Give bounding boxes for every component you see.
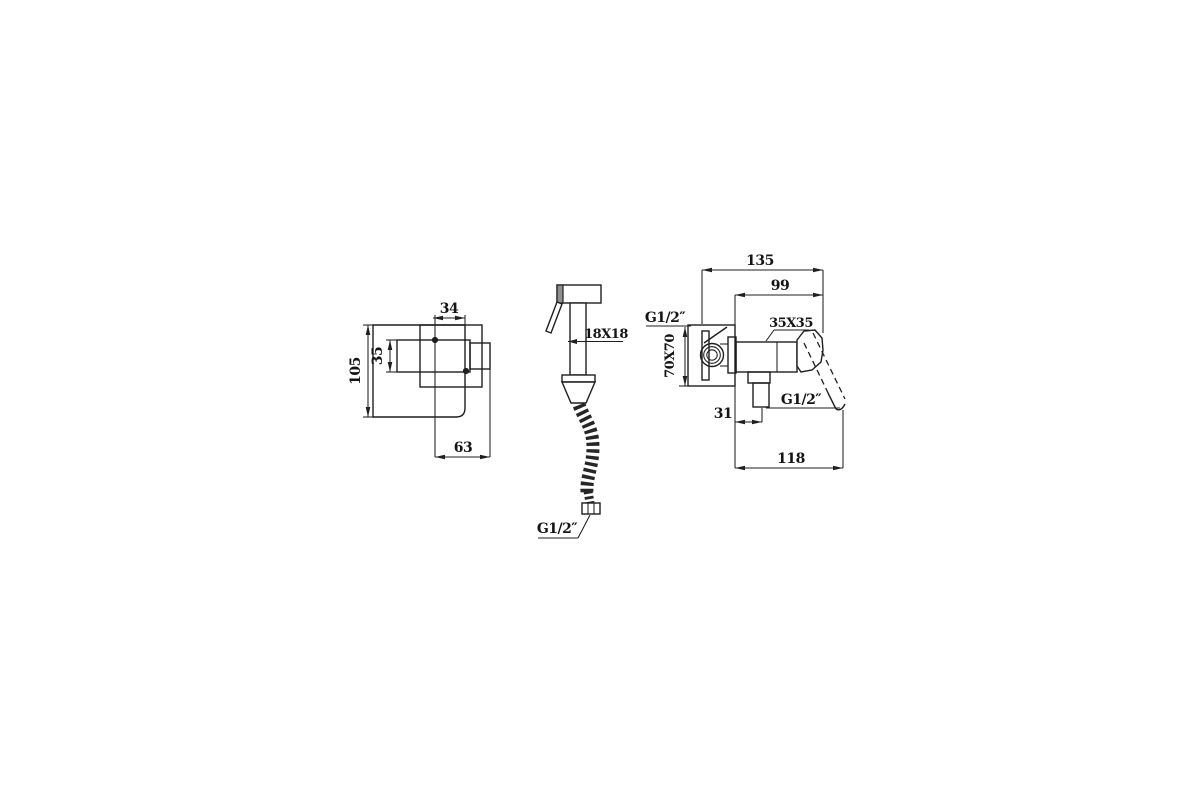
hose-fitting-nut [582, 503, 600, 514]
inlet-circle-mid [704, 347, 721, 364]
side-view: 135 99 G1/2″ 70X70 35X35 G1/2″ 31 118 [645, 253, 845, 468]
handle-cap [797, 330, 823, 372]
handle-lever-edge-upper [813, 333, 845, 399]
handle-lever-edge-solid [828, 393, 836, 409]
drawing-canvas: 34 35 105 63 18X18 G1/2″ [0, 0, 1200, 800]
hose-thread-label: G1/2″ [537, 521, 578, 537]
dim-70x70-label: 70X70 [663, 334, 678, 378]
dim-35-label: 35 [370, 347, 386, 365]
outlet-step [748, 372, 770, 383]
sprayer-cone [562, 382, 595, 403]
dim-35x35-leader [766, 330, 774, 341]
sprayer-hose-tail [588, 491, 590, 503]
dim-34-label: 34 [440, 301, 459, 317]
handle-lever-tip [836, 404, 845, 410]
callout-18x18-label: 18X18 [584, 327, 628, 342]
dim-63-label: 63 [454, 440, 472, 456]
sprayer-trigger-lever [546, 302, 562, 333]
front-handle-bar [397, 340, 470, 372]
sprayer-hose [579, 405, 593, 492]
dim-118-label: 118 [777, 451, 805, 467]
front-handle-knob [470, 343, 490, 369]
dim-35x35-label: 35X35 [769, 316, 813, 331]
front-body-square [420, 325, 482, 387]
hose-thread-leader [578, 515, 590, 538]
side-body [736, 342, 797, 372]
dim-99-label: 99 [771, 278, 789, 294]
sprayer-view: 18X18 G1/2″ [537, 285, 628, 538]
outlet-thread-label: G1/2″ [781, 392, 822, 408]
dim-105-label: 105 [348, 357, 364, 385]
side-bracket-bar [702, 331, 709, 380]
front-ref-dot-bottom [463, 368, 469, 374]
side-inlet-pipe-diagonal [704, 327, 727, 343]
inlet-thread-label: G1/2″ [645, 310, 686, 326]
technical-drawing: 34 35 105 63 18X18 G1/2″ [0, 0, 1200, 800]
sprayer-head-endcap [557, 285, 563, 303]
front-view: 34 35 105 63 [348, 301, 490, 457]
front-plate-outline [373, 325, 465, 417]
dim-135-label: 135 [746, 253, 774, 269]
outlet-pipe [753, 383, 769, 407]
sprayer-flange [562, 375, 595, 382]
dim-31-label: 31 [714, 406, 732, 422]
